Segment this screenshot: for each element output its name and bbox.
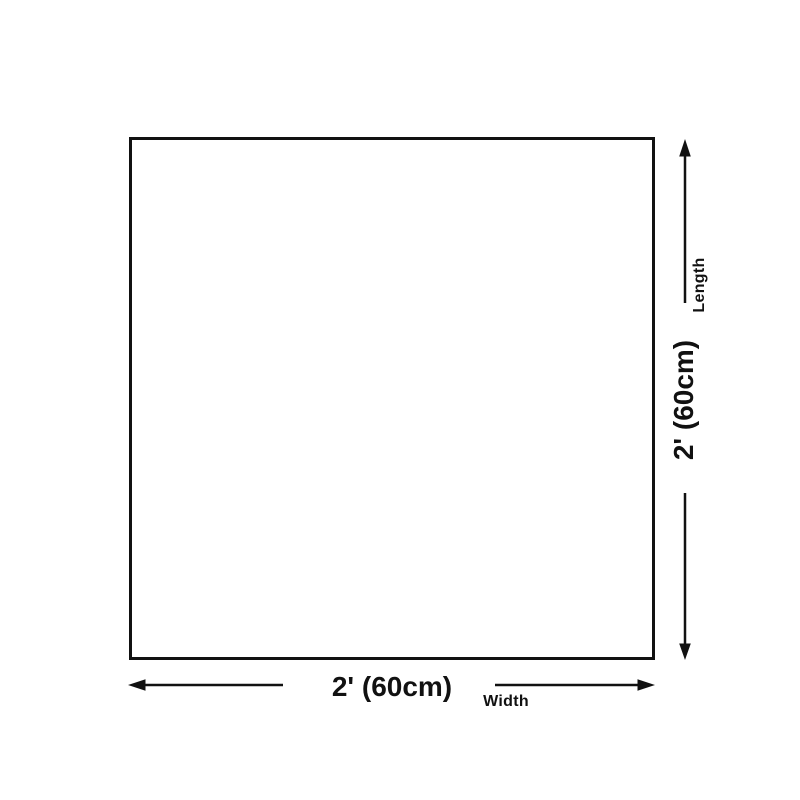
arrow-right-icon	[495, 679, 655, 691]
width-dimension-value: 2' (60cm)	[332, 673, 452, 701]
length-dimension-value: 2' (60cm)	[670, 340, 698, 460]
arrow-down-icon	[679, 493, 691, 660]
dimension-diagram: 2' (60cm) Length 2' (60cm) Width	[0, 0, 800, 800]
width-axis-label: Width	[483, 694, 529, 710]
arrow-up-icon	[679, 139, 691, 303]
arrow-left-icon	[128, 679, 283, 691]
length-axis-label: Length	[692, 257, 708, 312]
